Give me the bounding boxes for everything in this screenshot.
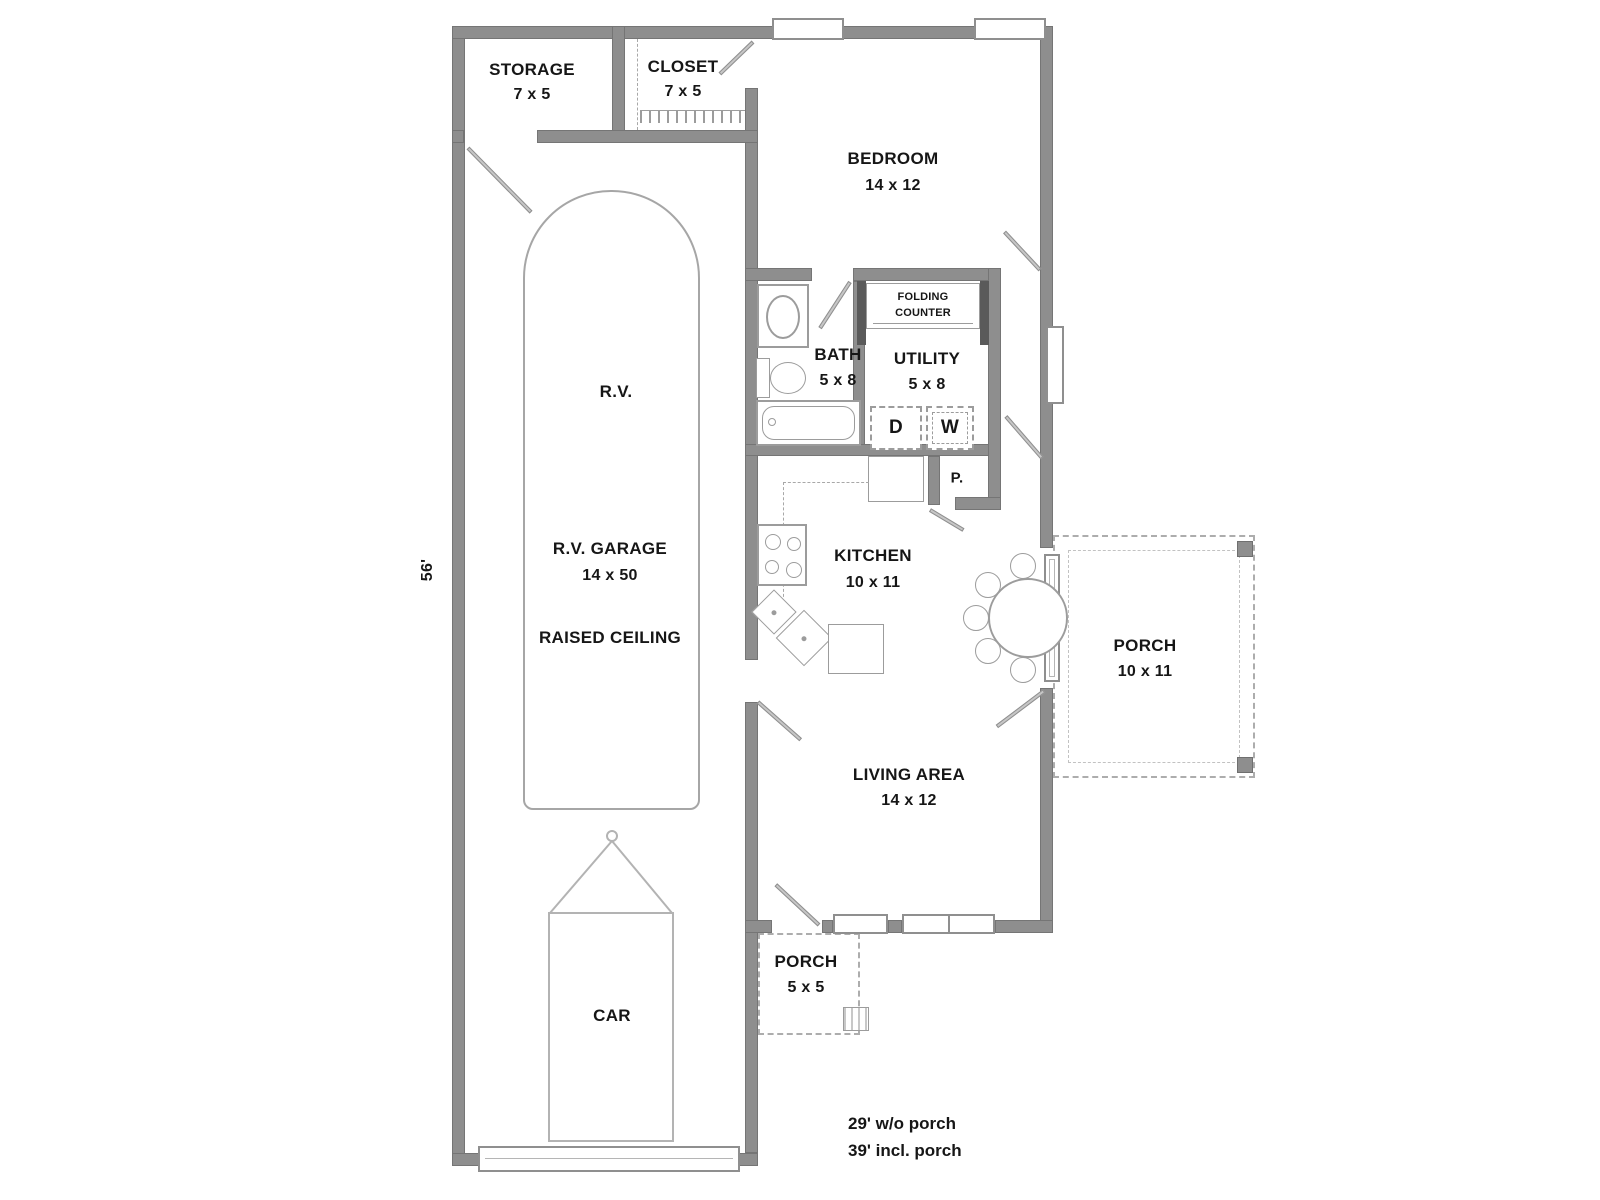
- pantry-label: P.: [951, 470, 964, 487]
- wall-garage-left: [452, 26, 465, 1166]
- bath-dims: 5 x 8: [819, 372, 856, 390]
- bath-label: BATH: [814, 345, 861, 365]
- sink-drain-2: [800, 635, 807, 642]
- bedroom-door-swing: [1003, 231, 1041, 272]
- bath-sink: [766, 295, 800, 339]
- burner-2: [787, 537, 801, 551]
- storage-label: STORAGE: [489, 60, 575, 80]
- utility-label: UTILITY: [894, 349, 960, 369]
- car-hitch-line-right: [611, 840, 673, 913]
- folding-counter-line: [873, 323, 973, 324]
- living-window-left: [833, 914, 888, 934]
- bedroom-window-east: [1046, 326, 1064, 404]
- bathtub: [756, 400, 861, 446]
- kitchen-counter-dash-top: [783, 482, 869, 483]
- dining-chair-3: [963, 605, 989, 631]
- bedroom-window-top-left: [772, 18, 844, 40]
- folding-counter-post-right: [980, 281, 989, 345]
- folding-counter: [866, 283, 980, 329]
- toilet-tank: [756, 358, 770, 398]
- living-window-divider: [948, 916, 950, 932]
- folding-counter-label-2: COUNTER: [895, 307, 951, 319]
- rv-garage-door: [478, 1146, 740, 1172]
- width-incl-porch: 39' incl. porch: [848, 1137, 962, 1164]
- living-window-right: [902, 914, 995, 934]
- dryer-label: D: [889, 417, 903, 439]
- rv-outline: [523, 190, 700, 810]
- stove: [757, 524, 807, 586]
- wall-living-bottom-2: [822, 920, 833, 933]
- living-area-dims: 14 x 12: [881, 792, 936, 810]
- sink-drain-1: [770, 609, 777, 616]
- wall-pantry-left: [928, 456, 940, 505]
- burner-3: [765, 560, 779, 574]
- bath-vanity: [757, 284, 809, 348]
- closet-door-swing: [719, 41, 755, 76]
- depth-dimension-label: 56': [419, 559, 437, 582]
- hall-door-swing: [1004, 415, 1043, 459]
- bathtub-drain: [768, 418, 776, 426]
- rv-label: R.V.: [600, 382, 633, 402]
- side-porch-label: PORCH: [1114, 636, 1177, 656]
- toilet-bowl: [770, 362, 806, 394]
- rv-garage-label: R.V. GARAGE: [553, 539, 667, 559]
- closet-rod: [640, 110, 745, 123]
- washer-label: W: [941, 417, 959, 439]
- wall-living-bottom-4: [995, 920, 1053, 933]
- width-without-porch: 29' w/o porch: [848, 1110, 962, 1137]
- wall-pantry-bottom: [955, 497, 1001, 510]
- pantry-door-swing: [929, 508, 964, 532]
- closet-dashed-line: [637, 39, 638, 130]
- wall-top: [452, 26, 1053, 39]
- rv-garage-dims: 14 x 50: [582, 567, 637, 585]
- wall-living-bottom-3: [888, 920, 902, 933]
- wall-bedroom-bottom-right: [853, 268, 1001, 281]
- kitchen-label: KITCHEN: [834, 546, 912, 566]
- front-porch-steps: [843, 1007, 869, 1031]
- wall-storage-bottom-stub: [452, 130, 464, 143]
- folding-counter-label-1: FOLDING: [898, 291, 949, 303]
- bedroom-label: BEDROOM: [848, 149, 939, 169]
- car-hitch-line-left: [549, 840, 612, 913]
- kitchen-peninsula: [828, 624, 884, 674]
- patio-door-swing: [996, 689, 1046, 728]
- wall-utility-right: [988, 268, 1001, 510]
- porch-post-bottom-right: [1237, 757, 1253, 773]
- front-porch-label: PORCH: [775, 952, 838, 972]
- living-area-label: LIVING AREA: [853, 765, 965, 785]
- closet-label: CLOSET: [648, 57, 719, 77]
- wall-storage-closet-divider: [612, 26, 625, 143]
- kitchen-cabinet: [868, 456, 924, 502]
- bedroom-dims: 14 x 12: [865, 177, 920, 195]
- side-porch-inner-line: [1068, 550, 1240, 763]
- dining-table: [988, 578, 1068, 658]
- kitchen-dims: 10 x 11: [846, 574, 901, 592]
- burner-1: [765, 534, 781, 550]
- side-porch-dims: 10 x 11: [1118, 663, 1173, 681]
- bedroom-window-top-right: [974, 18, 1046, 40]
- front-door-swing: [774, 883, 820, 926]
- car-label: CAR: [593, 1006, 631, 1026]
- wall-east-lower: [1040, 688, 1053, 933]
- wall-storage-closet-bottom: [537, 130, 758, 143]
- storage-door-swing: [467, 147, 533, 214]
- dining-chair-5: [1010, 657, 1036, 683]
- raised-ceiling-label: RAISED CEILING: [539, 628, 681, 648]
- car-hitch-ball: [606, 830, 618, 842]
- car-space: [548, 912, 674, 1142]
- wall-living-bottom-1: [745, 920, 772, 933]
- floor-plan: STORAGE 7 x 5 CLOSET 7 x 5 BEDROOM 14 x …: [0, 0, 1600, 1200]
- rv-garage-door-inner-line: [485, 1158, 733, 1159]
- front-porch-dims: 5 x 5: [787, 979, 824, 997]
- dining-chair-1: [1010, 553, 1036, 579]
- garage-living-door-swing: [757, 701, 802, 742]
- burner-4: [786, 562, 802, 578]
- closet-dims: 7 x 5: [664, 83, 701, 101]
- storage-dims: 7 x 5: [513, 86, 550, 104]
- folding-counter-post-left: [857, 281, 866, 345]
- bath-door-swing: [818, 281, 851, 329]
- width-dimension-notes: 29' w/o porch 39' incl. porch: [848, 1110, 962, 1164]
- wall-east-upper: [1040, 26, 1053, 548]
- wall-bedroom-bottom-left: [745, 268, 812, 281]
- utility-dims: 5 x 8: [908, 376, 945, 394]
- bathtub-inner: [762, 406, 855, 440]
- porch-post-top-right: [1237, 541, 1253, 557]
